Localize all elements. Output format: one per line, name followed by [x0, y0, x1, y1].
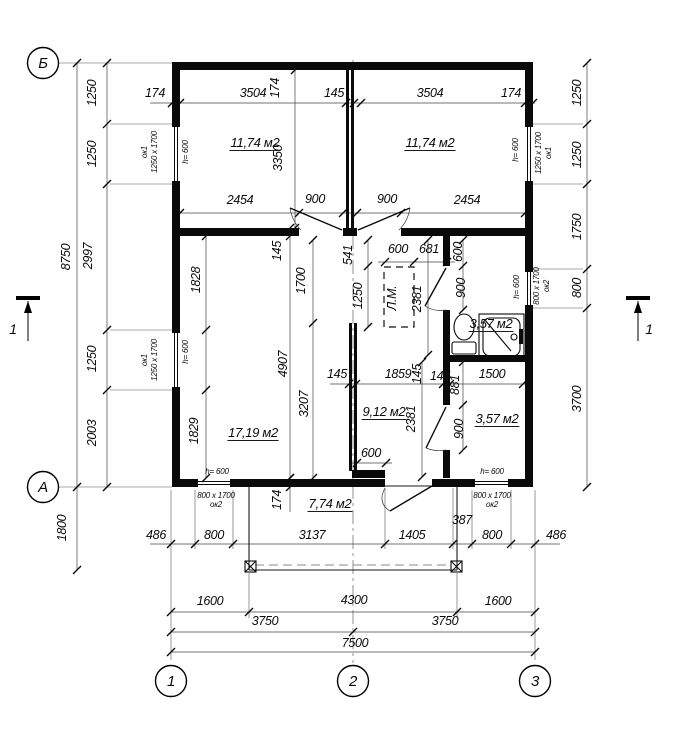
dimension-text: 145 [270, 241, 284, 261]
window-size-label: ок1 [140, 146, 149, 158]
dimension-text: 1828 [189, 266, 203, 293]
bathtub-faucet [519, 329, 523, 344]
dimension-text: 600 [451, 242, 465, 262]
dimension-text: 600 [388, 242, 408, 256]
dimension-text: 3750 [252, 614, 279, 628]
bedroom-partition-wall [180, 228, 299, 236]
dimension-text: 1700 [294, 267, 308, 294]
dimension-text: 3504 [240, 86, 267, 100]
dimension-text: 1829 [187, 417, 201, 444]
dimension-text: 2454 [453, 193, 481, 207]
bathroom-left-wall [443, 236, 450, 266]
room-area-label: 9,12 м2 [363, 404, 407, 419]
dimension-text: 1250 [351, 282, 365, 309]
dimension-text: 2454 [226, 193, 254, 207]
window-sill-height-label: h= 600 [181, 340, 190, 364]
dimension-text: 174 [268, 78, 282, 98]
dimension-text: 900 [305, 192, 325, 206]
door-bedroom-right [358, 208, 410, 230]
dimension-text: 145 [324, 86, 344, 100]
room-area-label: 11,74 м2 [231, 135, 281, 150]
dimension-text: 8750 [59, 243, 73, 270]
window-left-bottom [172, 330, 180, 390]
dimension-text: 1600 [197, 594, 224, 608]
room-area-label: 7,74 м2 [309, 496, 353, 511]
dimension-text: 900 [452, 419, 466, 439]
dimension-text: 1859 [385, 367, 412, 381]
door-storage [426, 407, 446, 451]
dimension-text: 486 [546, 528, 566, 542]
bedroom-partition-wall [401, 228, 525, 236]
center-wall [346, 70, 349, 228]
dimension-text: 2003 [85, 419, 99, 447]
dimension-text: 2997 [81, 241, 95, 270]
section-mark-left [16, 298, 40, 341]
axis-bubble-label: 2 [348, 673, 358, 690]
window-size-label: ок2 [486, 500, 499, 509]
dimension-text: 800 [482, 528, 502, 542]
exterior-wall-left [172, 62, 180, 124]
hall-living-wall [354, 323, 357, 471]
dimension-text: 7500 [342, 636, 369, 650]
window-bottom-right [472, 479, 511, 487]
dimension-text: 1750 [570, 213, 584, 240]
dimension-text: 1405 [399, 528, 426, 542]
room-area-label: 3,57 м2 [476, 411, 520, 426]
dimension-text: 1600 [485, 594, 512, 608]
floor-plan-drawing: 1743504174145350417424549009002454600681… [0, 0, 683, 747]
dimension-text: 541 [341, 245, 355, 265]
dimension-text: 900 [377, 192, 397, 206]
window-size-label: 1250 x 1700 [150, 338, 159, 381]
dimension-text: 4300 [341, 593, 368, 607]
window-size-label: ок2 [210, 500, 223, 509]
dimension-text: 387 [452, 513, 473, 527]
window-size-label: 1250 x 1700 [534, 131, 543, 174]
dimension-text: 1250 [85, 345, 99, 372]
exterior-wall-right [525, 184, 533, 269]
storage-left-wall [443, 450, 450, 478]
axis-bubble-label: Б [38, 55, 48, 72]
door-entry [382, 486, 432, 511]
dimension-text: 1500 [479, 367, 506, 381]
dimension-text: 900 [454, 278, 468, 298]
dimension-text: 1250 [570, 141, 584, 168]
axis-bubble-label: 1 [167, 673, 175, 690]
hall-living-wall [349, 323, 352, 471]
window-left-top [172, 124, 180, 184]
axis-bubble-label: 3 [531, 673, 540, 690]
window-sill-height-label: h= 600 [512, 275, 521, 299]
dimension-text: 174 [501, 86, 521, 100]
room-area-label: 17,19 м2 [228, 425, 279, 440]
bedroom-partition-wall [343, 228, 357, 236]
dimension-text: 145 [327, 367, 347, 381]
stair-flight-label: Л.М. [385, 286, 399, 312]
window-sill-height-label: h= 600 [205, 467, 229, 476]
dimension-text: 174 [270, 490, 284, 510]
room-area-label: 11,74 м2 [406, 135, 456, 150]
dimension-text: 1250 [85, 140, 99, 167]
section-mark-label: 1 [9, 321, 17, 337]
center-wall [351, 70, 354, 228]
window-sill-height-label: h= 600 [181, 140, 190, 164]
window-size-label: ок2 [542, 279, 551, 292]
dimension-text: 3207 [297, 389, 311, 417]
section-mark-label: 1 [645, 321, 653, 337]
dimension-text: 3750 [432, 614, 459, 628]
window-size-label: ок1 [140, 354, 149, 366]
exterior-wall-bottom [511, 479, 533, 487]
dimension-text: 4907 [276, 349, 290, 377]
exterior-wall-top [172, 62, 533, 70]
room-area-label: 3,57 м2 [470, 316, 514, 331]
hall-bottom-stub [352, 470, 385, 478]
dimension-text: 486 [146, 528, 166, 542]
door-bedroom-left [290, 208, 342, 230]
floor-plan-page: 1743504174145350417424549009002454600681… [0, 0, 683, 747]
dimension-text: 881 [448, 375, 462, 395]
exterior-wall-right [525, 62, 533, 124]
window-sill-height-label: h= 600 [511, 138, 520, 162]
exterior-wall-right [525, 308, 533, 487]
annotation-text-layer: 1743504174145350417424549009002454600681… [55, 78, 584, 650]
window-right-top [525, 124, 533, 184]
exterior-wall-left [172, 390, 180, 487]
section-marks-layer: 11 [9, 298, 653, 341]
dimension-text: 2381 [410, 286, 424, 314]
window-size-label: 1250 x 1700 [150, 130, 159, 173]
dimension-text: 3700 [570, 385, 584, 412]
dimension-text: 1250 [85, 79, 99, 106]
bathroom-left-wall [443, 310, 450, 355]
window-size-label: 800 x 1700 [197, 491, 235, 500]
dimension-text: 800 [570, 278, 584, 298]
window-bottom-left [195, 479, 233, 487]
dimension-text: 3137 [299, 528, 327, 542]
window-sill-height-label: h= 600 [480, 467, 504, 476]
dimension-text: 174 [145, 86, 165, 100]
exterior-wall-bottom [432, 479, 472, 487]
window-size-label: 800 x 1700 [532, 266, 541, 304]
exterior-wall-left [172, 184, 180, 330]
dimension-text: 800 [204, 528, 224, 542]
dimension-text: 1250 [570, 79, 584, 106]
exterior-wall-bottom [233, 479, 385, 487]
dimension-text: 1800 [55, 514, 69, 541]
dimension-text: 681 [419, 242, 439, 256]
window-size-label: ок1 [544, 147, 553, 159]
dimension-text: 600 [361, 446, 381, 460]
dimension-text: 145 [410, 364, 424, 384]
dimension-text: 3504 [417, 86, 444, 100]
window-size-label: 800 x 1700 [473, 491, 511, 500]
axis-bubble-label: А [37, 479, 48, 496]
exterior-wall-bottom [172, 479, 195, 487]
